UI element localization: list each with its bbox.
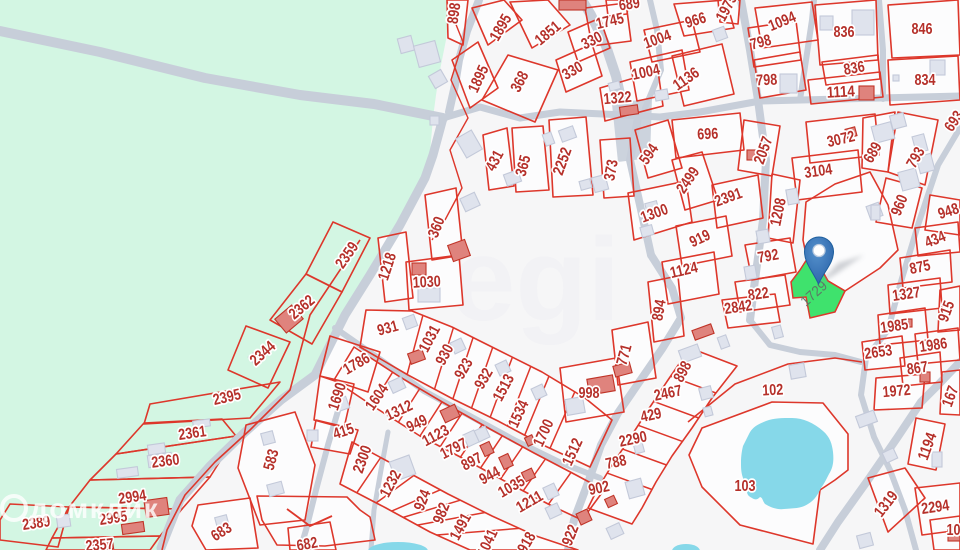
svg-text:894: 894 <box>649 298 669 322</box>
svg-text:1972: 1972 <box>882 382 912 401</box>
svg-text:696: 696 <box>697 125 719 143</box>
svg-text:2360: 2360 <box>151 451 181 471</box>
svg-text:2357: 2357 <box>85 536 115 550</box>
svg-text:373: 373 <box>601 158 621 182</box>
svg-text:домклик: домклик <box>30 493 159 524</box>
svg-text:867: 867 <box>906 359 929 379</box>
svg-text:834: 834 <box>915 72 936 89</box>
svg-text:104: 104 <box>947 522 960 539</box>
svg-text:798: 798 <box>756 71 778 89</box>
svg-text:1030: 1030 <box>412 273 441 291</box>
svg-text:egi: egi <box>450 214 621 346</box>
svg-text:103: 103 <box>735 478 756 495</box>
svg-text:836: 836 <box>834 24 855 41</box>
svg-text:846: 846 <box>912 21 933 38</box>
svg-text:898: 898 <box>445 2 465 25</box>
svg-text:998: 998 <box>579 385 600 402</box>
svg-text:1114: 1114 <box>826 83 855 101</box>
svg-text:836: 836 <box>842 58 866 78</box>
svg-text:792: 792 <box>756 246 780 266</box>
svg-text:1322: 1322 <box>603 89 633 108</box>
svg-text:102: 102 <box>762 381 784 399</box>
svg-text:682: 682 <box>295 534 319 550</box>
